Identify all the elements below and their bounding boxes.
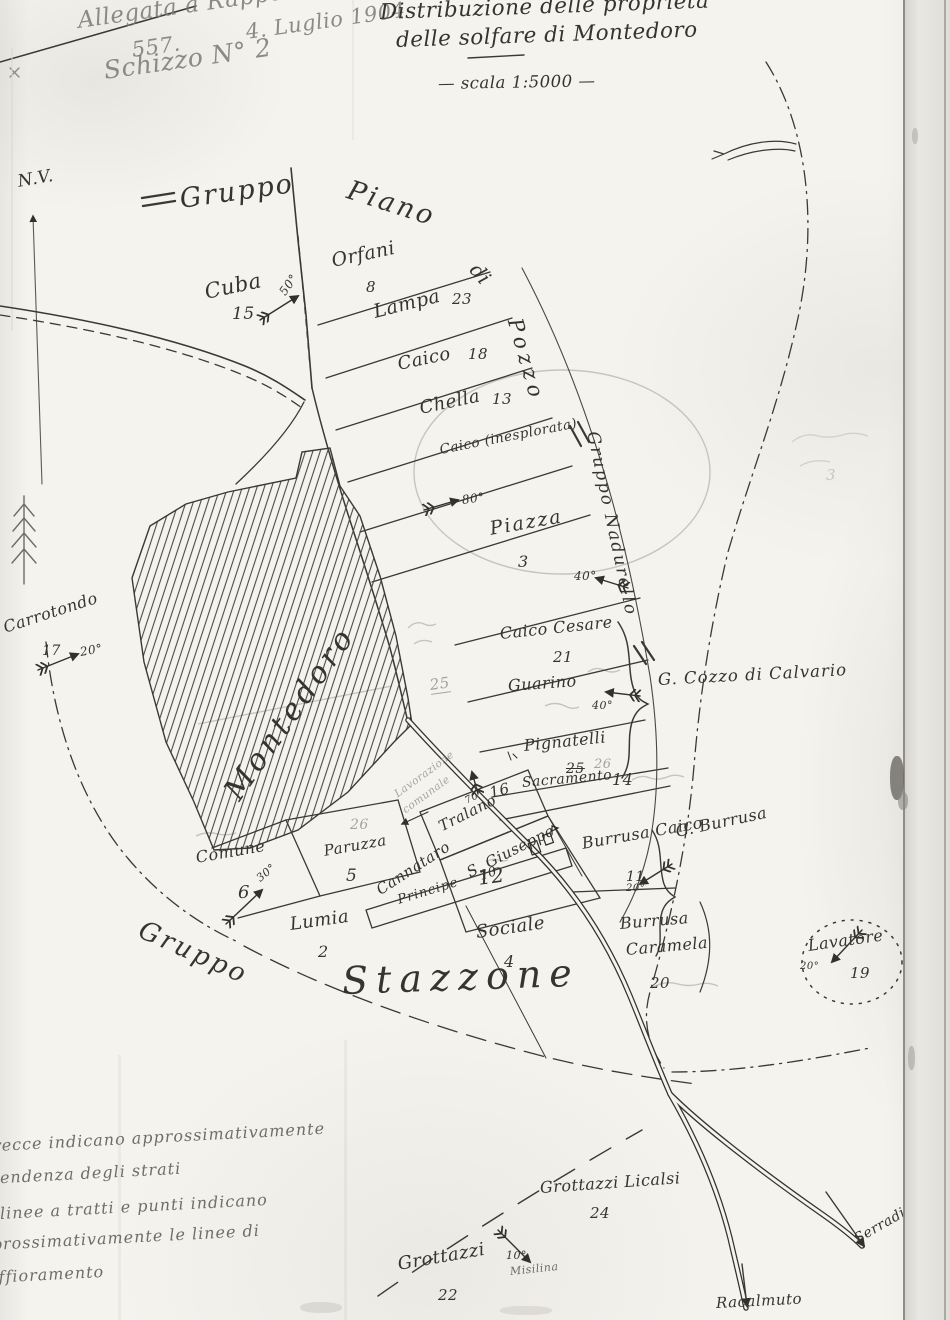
parcel-caico-inesplorata-dip: 80°	[461, 491, 485, 506]
parcel-burrusa-caramela-number: 20	[650, 976, 670, 991]
scan-streak	[344, 1040, 347, 1320]
parcel-burrusa-caico-number: 11	[626, 870, 645, 884]
parcel-piazza-dip: 40°	[574, 570, 597, 582]
scan-smudge	[500, 1306, 552, 1315]
parcel-sociale-number: 4	[504, 954, 515, 970]
parcel-burrusa-caico-dip: 20°	[626, 884, 645, 894]
parcel-carrotondo-number: 17	[42, 644, 61, 658]
map-scale: — scala 1:5000 —	[438, 73, 596, 92]
ink-lines	[0, 6, 902, 1308]
pencil-number-3: 3	[826, 468, 836, 483]
parcel-cuba-number: 15	[232, 306, 255, 323]
scan-streak	[118, 1055, 121, 1320]
parcel-grottazzi-number: 22	[438, 1288, 458, 1303]
group-stazzone-word-stazzone: Stazzone	[341, 954, 580, 1000]
parcel-orfani-number: 8	[366, 280, 376, 295]
scan-blotch	[908, 1046, 915, 1070]
parcel-carrotondo-dip: 20°	[79, 642, 104, 658]
pencil-number-26: 26	[350, 818, 369, 832]
parcel-caico-cesare-number: 21	[553, 650, 573, 665]
parcel-sacramento-number: 14	[612, 772, 633, 788]
page-right-border	[944, 0, 946, 1320]
parcel-caico-number: 18	[468, 347, 488, 362]
scan-blotch	[898, 792, 908, 810]
page-right-edge	[903, 0, 950, 1320]
parcel-guarino-dip: 40°	[592, 700, 613, 711]
pencil-number-25: 25	[429, 675, 451, 695]
parcel-grottazzi-dip: 10°	[506, 1250, 527, 1261]
parcel-chella-number: 13	[492, 392, 512, 407]
parcel-paruzza-number: 5	[346, 868, 357, 885]
parcel-lavatore-dip: 20°	[800, 962, 819, 972]
parcel-comune-number: 6	[238, 884, 250, 902]
map-sheet: Allegata a Rapporto 557. 4. Luglio 1904 …	[0, 0, 950, 1320]
parcel-lampa-number: 23	[452, 292, 472, 307]
scan-smudge	[300, 1302, 342, 1313]
parcel-grottazzi-licalsi-number: 24	[590, 1206, 610, 1221]
parcel-guarino-name: Guarino	[507, 673, 577, 694]
map-linework	[0, 0, 950, 1320]
scan-blotch	[912, 128, 918, 144]
parcel-lavatore-number: 19	[850, 966, 870, 981]
montedoro-hatched-area	[132, 448, 412, 850]
place-racalmuto: Racalmuto	[716, 1292, 803, 1311]
scan-streak	[352, 0, 354, 140]
parcel-piazza-number: 3	[518, 554, 529, 570]
parcel-lumia-number: 2	[318, 944, 329, 960]
